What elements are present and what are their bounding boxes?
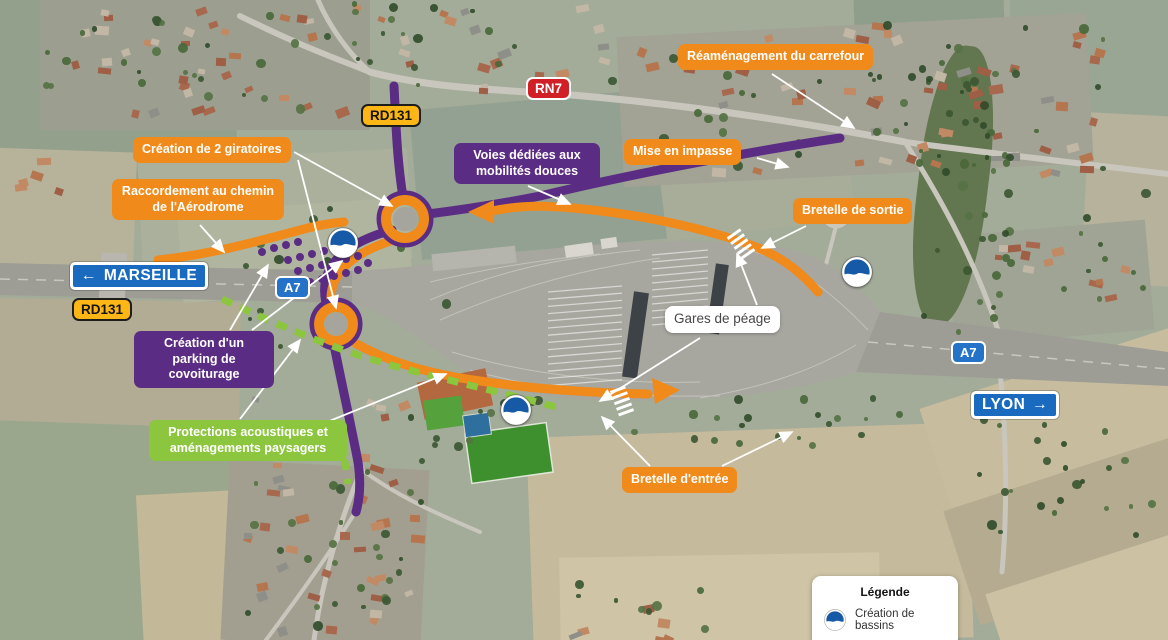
badge-rd131-top: RD131	[361, 104, 421, 127]
label-bretelle-sortie: Bretelle de sortie	[793, 198, 912, 224]
sign-lyon-text: LYON	[982, 396, 1025, 414]
leader-arrow	[757, 158, 788, 167]
bassin-icon-svg	[500, 394, 532, 426]
bassin-icon-svg	[824, 609, 846, 631]
bassin-icon-svg	[841, 256, 873, 288]
label-parking-covoiturage: Création d'un parking de covoiturage	[134, 331, 274, 388]
legend: Légende Création de bassins	[812, 576, 958, 640]
parking-dot	[270, 244, 278, 252]
parking-dot	[342, 269, 350, 277]
leader-arrow	[762, 226, 806, 248]
orange-arrowhead-east	[652, 378, 680, 404]
leader-arrow	[722, 432, 792, 466]
badge-rn7: RN7	[526, 77, 571, 100]
bassin-icon	[841, 256, 873, 288]
label-gares-peage: Gares de péage	[665, 306, 780, 333]
sign-lyon: LYON →	[971, 391, 1059, 419]
label-protections-acoustiques: Protections acoustiques et aménagements …	[149, 420, 347, 461]
leader-arrow	[737, 254, 757, 305]
parking-dot	[258, 248, 266, 256]
parking-dot	[306, 264, 314, 272]
rd131-road-purple	[394, 86, 403, 197]
parking-dot	[284, 256, 292, 264]
arrow-left-icon: ←	[81, 267, 97, 285]
legend-item-label: Création de bassins	[855, 608, 946, 632]
label-bretelle-entree: Bretelle d'entrée	[622, 467, 737, 493]
legend-title: Légende	[824, 585, 946, 599]
label-raccordement-aerodrome: Raccordement au chemin de l'Aérodrome	[112, 179, 284, 220]
parking-dot	[330, 272, 338, 280]
label-voies-mobilites-douces: Voies dédiées aux mobilités douces	[454, 143, 600, 184]
sign-marseille-text: MARSEILLE	[104, 267, 197, 285]
badge-a7-right: A7	[951, 341, 986, 364]
bassin-icon	[327, 227, 359, 259]
leader-arrow	[772, 74, 854, 128]
parking-dot	[364, 259, 372, 267]
badge-a7-left: A7	[275, 276, 310, 299]
exit-ramp-orange	[492, 206, 818, 292]
label-mise-en-impasse: Mise en impasse	[624, 139, 741, 165]
sign-marseille: ← MARSEILLE	[70, 262, 208, 290]
legend-item-bassins: Création de bassins	[824, 608, 946, 632]
parking-dot	[282, 241, 290, 249]
label-reamenagement-carrefour: Réaménagement du carrefour	[678, 44, 873, 70]
parking-dot	[294, 267, 302, 275]
badge-rd131-left: RD131	[72, 298, 132, 321]
parking-dot	[294, 238, 302, 246]
project-overlay-layer	[0, 0, 1168, 640]
bassin-icon	[500, 394, 532, 426]
parking-dot	[296, 253, 304, 261]
project-map: Réaménagement du carrefour Création de 2…	[0, 0, 1168, 640]
leader-arrow	[294, 152, 392, 206]
parking-dot	[354, 266, 362, 274]
parking-dot	[308, 250, 316, 258]
arrow-right-icon: →	[1032, 396, 1048, 414]
roundabout-north	[380, 194, 430, 244]
bassin-icon	[824, 609, 846, 631]
label-creation-giratoires: Création de 2 giratoires	[133, 137, 291, 163]
bassin-icon-svg	[327, 227, 359, 259]
leader-arrow	[602, 417, 650, 466]
